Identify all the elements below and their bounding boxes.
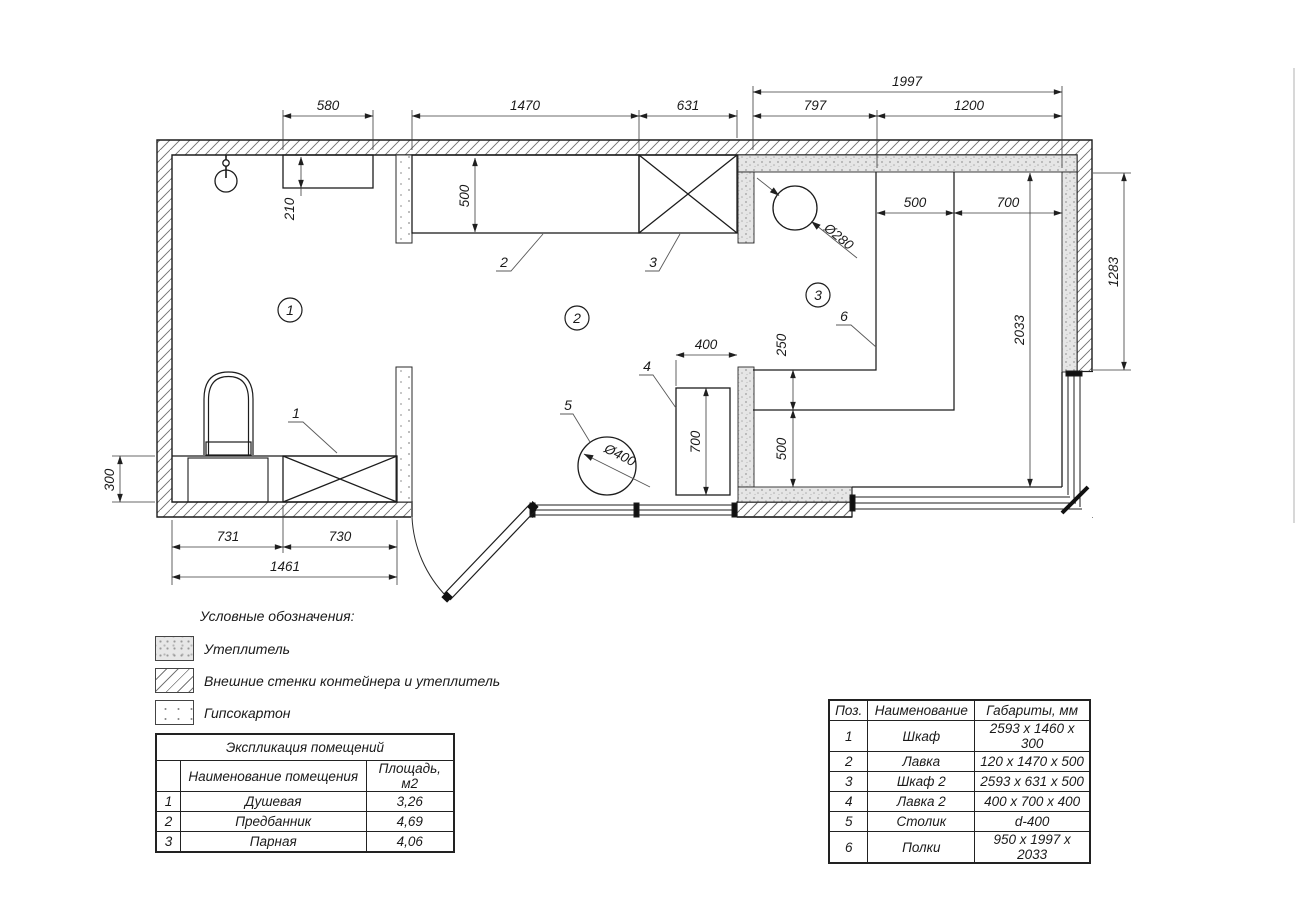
item-name: Столик [868, 812, 975, 832]
gypsum-swatch [155, 700, 194, 725]
svg-text:4: 4 [643, 358, 651, 374]
table-row: 6 Полки 950 x 1997 x 2033 [829, 832, 1090, 864]
cabinet-3 [639, 155, 737, 233]
room-area: 4,06 [366, 832, 454, 853]
table-row: 5 Столик d-400 [829, 812, 1090, 832]
dim-300: 300 [102, 468, 117, 491]
item-size: 2593 x 631 x 500 [975, 772, 1090, 792]
cabinet-1 [283, 456, 397, 502]
table-title-row: Экспликация помещений [156, 734, 454, 761]
svg-text:5: 5 [564, 397, 572, 413]
legend: Условные обозначения: Утеплитель Внешние… [155, 608, 500, 732]
bench-4 [676, 388, 730, 495]
item-size: 400 x 700 x 400 [975, 792, 1090, 812]
room-number-2: 2 [572, 310, 581, 326]
item-pos: 2 [829, 752, 868, 772]
table-row: 4 Лавка 2 400 x 700 x 400 [829, 792, 1090, 812]
header-name: Наименование [868, 700, 975, 721]
item-label-1: 1 [288, 405, 337, 453]
svg-text:3: 3 [649, 254, 657, 270]
item-label-3: 3 [645, 234, 680, 271]
header-room-name: Наименование помещения [180, 761, 366, 792]
legend-item-gypsum: Гипсокартон [155, 700, 500, 725]
dim-580: 580 [317, 98, 340, 113]
header-size: Габариты, мм [975, 700, 1090, 721]
room-area: 3,26 [366, 792, 454, 812]
window-front [530, 503, 737, 517]
dim-dia280: Ø280 [820, 220, 856, 253]
item-name: Полки [868, 832, 975, 864]
table-row: 2 Предбанник 4,69 [156, 812, 454, 832]
insulation-swatch [155, 636, 194, 661]
room-circles: 1 2 3 [278, 283, 830, 330]
table-row: 1 Душевая 3,26 [156, 792, 454, 812]
room-number-1: 1 [286, 302, 294, 318]
wall-shelf [283, 155, 373, 188]
header-pos: Поз. [829, 700, 868, 721]
item-pos: 4 [829, 792, 868, 812]
dim-400-bench: 400 [695, 337, 718, 352]
toilet [204, 372, 253, 455]
table-row: 3 Парная 4,06 [156, 832, 454, 853]
item-name: Шкаф 2 [868, 772, 975, 792]
bench-2 [412, 155, 639, 233]
table-row: 2 Лавка 120 x 1470 x 500 [829, 752, 1090, 772]
dim-731: 731 [217, 529, 240, 544]
dim-730: 730 [329, 529, 352, 544]
legend-title: Условные обозначения: [200, 608, 500, 624]
item-pos: 6 [829, 832, 868, 864]
legend-item-container-walls: Внешние стенки контейнера и утеплитель [155, 668, 500, 693]
explication-table: Экспликация помещений Наименование помещ… [155, 733, 455, 853]
room-num: 1 [156, 792, 180, 812]
explication-title: Экспликация помещений [156, 734, 454, 761]
room-area: 4,69 [366, 812, 454, 832]
item-name: Лавка 2 [868, 792, 975, 812]
room-num: 3 [156, 832, 180, 853]
item-size: d-400 [975, 812, 1090, 832]
header-area: Площадь, м2 [366, 761, 454, 792]
room-circle-3: 3 [806, 283, 830, 307]
table-header-row: Поз. Наименование Габариты, мм [829, 700, 1090, 721]
container-wall-swatch [155, 668, 194, 693]
gypsum-partitions [396, 155, 412, 502]
room-name: Душевая [180, 792, 366, 812]
room-name: Парная [180, 832, 366, 853]
item-size: 120 x 1470 x 500 [975, 752, 1090, 772]
item-pos: 3 [829, 772, 868, 792]
drawing-sheet: { "plan": { "dims": { "w580": "580", "w1… [0, 0, 1300, 919]
dim-1200: 1200 [954, 98, 985, 113]
item-label-4: 4 [639, 358, 676, 408]
svg-text:6: 6 [840, 308, 848, 324]
item-label-5: 5 [560, 397, 590, 442]
shower-head [215, 155, 237, 192]
dim-797: 797 [804, 98, 827, 113]
floor-plan: 580 1470 631 797 1200 1997 210 500 500 7… [0, 0, 1300, 610]
legend-item-label: Утеплитель [204, 641, 290, 657]
table-row: 3 Шкаф 2 2593 x 631 x 500 [829, 772, 1090, 792]
item-size: 2593 x 1460 x 300 [975, 721, 1090, 752]
item-name: Лавка [868, 752, 975, 772]
room-number-3: 3 [814, 287, 822, 303]
svg-text:1: 1 [292, 405, 300, 421]
item-name: Шкаф [868, 721, 975, 752]
item-pos: 5 [829, 812, 868, 832]
item-label-6: 6 [836, 308, 876, 347]
room-circle-2: 2 [565, 306, 589, 330]
room-name: Предбанник [180, 812, 366, 832]
window-sauna-bottom [850, 495, 1082, 511]
item-label-2: 2 [496, 234, 543, 271]
dim-500-bench: 500 [457, 184, 472, 207]
room-num: 2 [156, 812, 180, 832]
table-header-row: Наименование помещения Площадь, м2 [156, 761, 454, 792]
door-opening [411, 499, 532, 520]
vanity-counter [172, 456, 397, 502]
dim-500-sauna: 500 [774, 437, 789, 460]
table-row: 1 Шкаф 2593 x 1460 x 300 [829, 721, 1090, 752]
item-pos: 1 [829, 721, 868, 752]
dim-210: 210 [282, 197, 297, 221]
legend-item-label: Гипсокартон [204, 705, 290, 721]
dim-1461: 1461 [270, 559, 300, 574]
header-num [156, 761, 180, 792]
item-size: 950 x 1997 x 2033 [975, 832, 1090, 864]
legend-item-label: Внешние стенки контейнера и утеплитель [204, 673, 500, 689]
dim-700-bench: 700 [688, 430, 703, 453]
legend-item-insulation: Утеплитель [155, 636, 500, 661]
dim-2033: 2033 [1012, 314, 1027, 346]
svg-text:2: 2 [499, 254, 508, 270]
dim-500-shelf: 500 [904, 195, 927, 210]
dim-1997: 1997 [892, 74, 923, 89]
dim-250: 250 [774, 333, 789, 357]
dim-1470: 1470 [510, 98, 541, 113]
dim-700-shelf: 700 [997, 195, 1020, 210]
room-circle-1: 1 [278, 298, 302, 322]
dim-631: 631 [677, 98, 700, 113]
dim-1283: 1283 [1106, 256, 1121, 287]
furniture-table: Поз. Наименование Габариты, мм 1 Шкаф 25… [828, 699, 1091, 864]
